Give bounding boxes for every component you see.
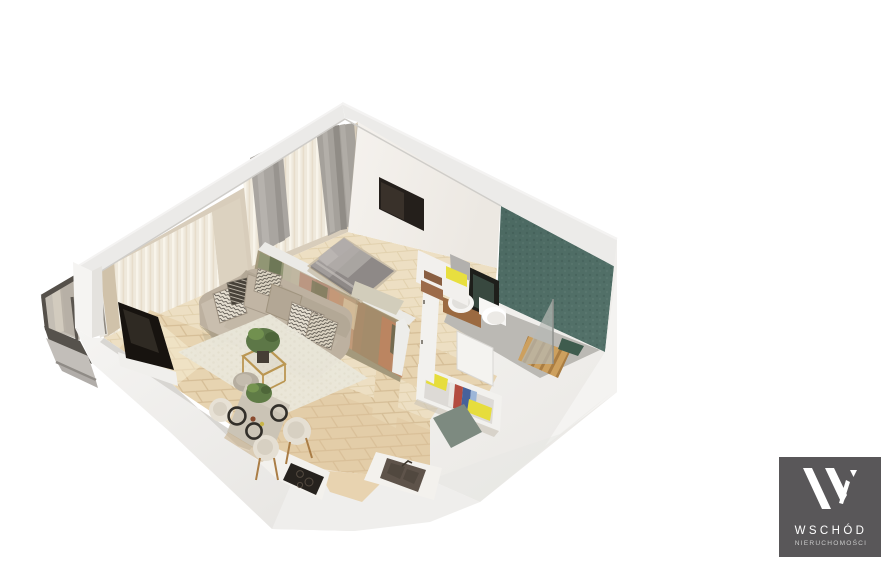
svg-text:WSCHÓD: WSCHÓD (795, 524, 868, 537)
svg-text:NIERUCHOMOŚCI: NIERUCHOMOŚCI (795, 538, 867, 547)
